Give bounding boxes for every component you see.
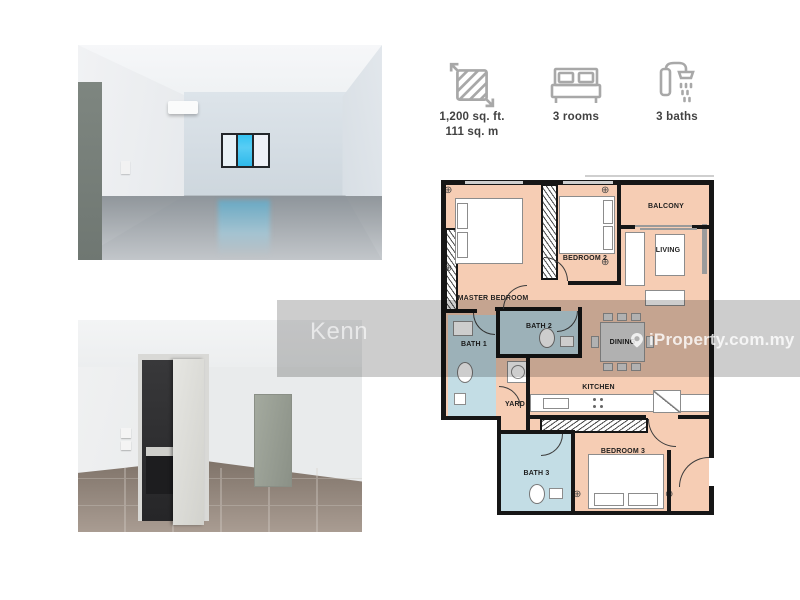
pillow	[603, 200, 613, 224]
photo2-right-door	[254, 394, 292, 487]
label-yard: YARD	[494, 400, 536, 409]
window-lintel	[563, 181, 613, 184]
label-bedroom2: BEDROOM 2	[555, 254, 615, 263]
sliding-door	[640, 228, 697, 230]
wall	[571, 434, 575, 515]
baths-label: 3 baths	[656, 110, 698, 125]
coffee-table	[655, 234, 685, 276]
balcony-outline	[585, 175, 714, 177]
stat-baths: 3 baths	[622, 60, 732, 125]
rooms-label: 3 rooms	[553, 110, 599, 125]
wall	[667, 450, 671, 511]
downlight-symbol: ⊕	[601, 186, 609, 196]
watermark-agent-text: Kenn	[310, 318, 368, 346]
air-conditioner	[168, 101, 198, 114]
pillow	[594, 493, 624, 506]
window-pane	[223, 135, 237, 165]
ac-ledge-symbol	[454, 393, 466, 405]
area-value-imperial: 1,200 sq. ft.	[439, 110, 504, 125]
label-kitchen: KITCHEN	[571, 383, 626, 392]
light-switch	[121, 441, 131, 451]
window-lintel	[465, 181, 523, 184]
bath3-toilet	[529, 484, 545, 504]
wall	[678, 415, 710, 419]
window-pane	[238, 135, 252, 165]
photo2-open-door-panel	[173, 359, 204, 524]
pillow	[457, 203, 468, 229]
wall	[530, 415, 646, 419]
watermark-brand-text: iProperty.com.my	[649, 330, 795, 350]
wall	[617, 184, 621, 285]
photo2-tile-lines	[78, 468, 362, 532]
wall	[497, 511, 714, 515]
pillow	[628, 493, 658, 506]
wall	[621, 225, 635, 229]
kitchen-sink	[543, 398, 569, 409]
pillow	[457, 232, 468, 258]
area-value-metric: 111 sq. m	[446, 125, 499, 140]
window-pane	[254, 135, 268, 165]
photo1-window	[221, 133, 270, 167]
watermark-brand: iProperty.com.my	[629, 330, 795, 350]
map-pin-icon	[629, 332, 645, 348]
area-measure-icon	[447, 60, 497, 110]
light-switch	[121, 161, 130, 174]
label-balcony: BALCONY	[636, 202, 696, 211]
photo1-window-reflection	[218, 200, 270, 256]
stove-burners	[593, 398, 596, 401]
sofa	[625, 232, 645, 286]
wall	[568, 281, 621, 285]
label-bath3: BATH 3	[509, 469, 564, 478]
label-living: LIVING	[638, 246, 698, 255]
bath3-sink	[549, 488, 563, 499]
plan-outside-notch	[441, 420, 497, 515]
wall	[441, 416, 501, 420]
property-listing-image: 1,200 sq. ft. 111 sq. m 3 rooms 3 baths	[0, 0, 800, 600]
tv-console	[702, 224, 707, 274]
sliding-door	[635, 225, 692, 227]
label-bedroom3: BEDROOM 3	[583, 447, 663, 456]
stat-area: 1,200 sq. ft. 111 sq. m	[417, 60, 527, 140]
pillow	[603, 226, 613, 250]
stat-rooms: 3 rooms	[521, 62, 631, 125]
refrigerator	[653, 390, 681, 413]
entry-opening	[709, 458, 714, 486]
light-switch	[121, 428, 131, 438]
wall	[497, 430, 575, 434]
bed-icon	[548, 62, 604, 110]
shower-icon	[653, 60, 701, 110]
photo1-door	[78, 82, 102, 260]
photo-empty-room-window	[78, 45, 382, 260]
